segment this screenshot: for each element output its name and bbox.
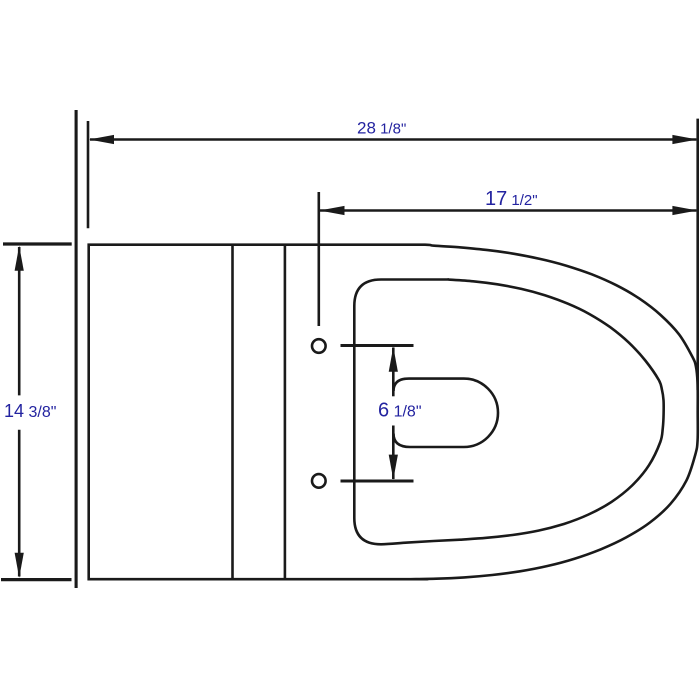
- svg-text:28 1/8": 28 1/8": [357, 118, 406, 137]
- svg-text:17 1/2": 17 1/2": [485, 188, 538, 210]
- svg-text:6 1/8": 6 1/8": [378, 399, 422, 421]
- svg-text:14 3/8": 14 3/8": [4, 401, 56, 421]
